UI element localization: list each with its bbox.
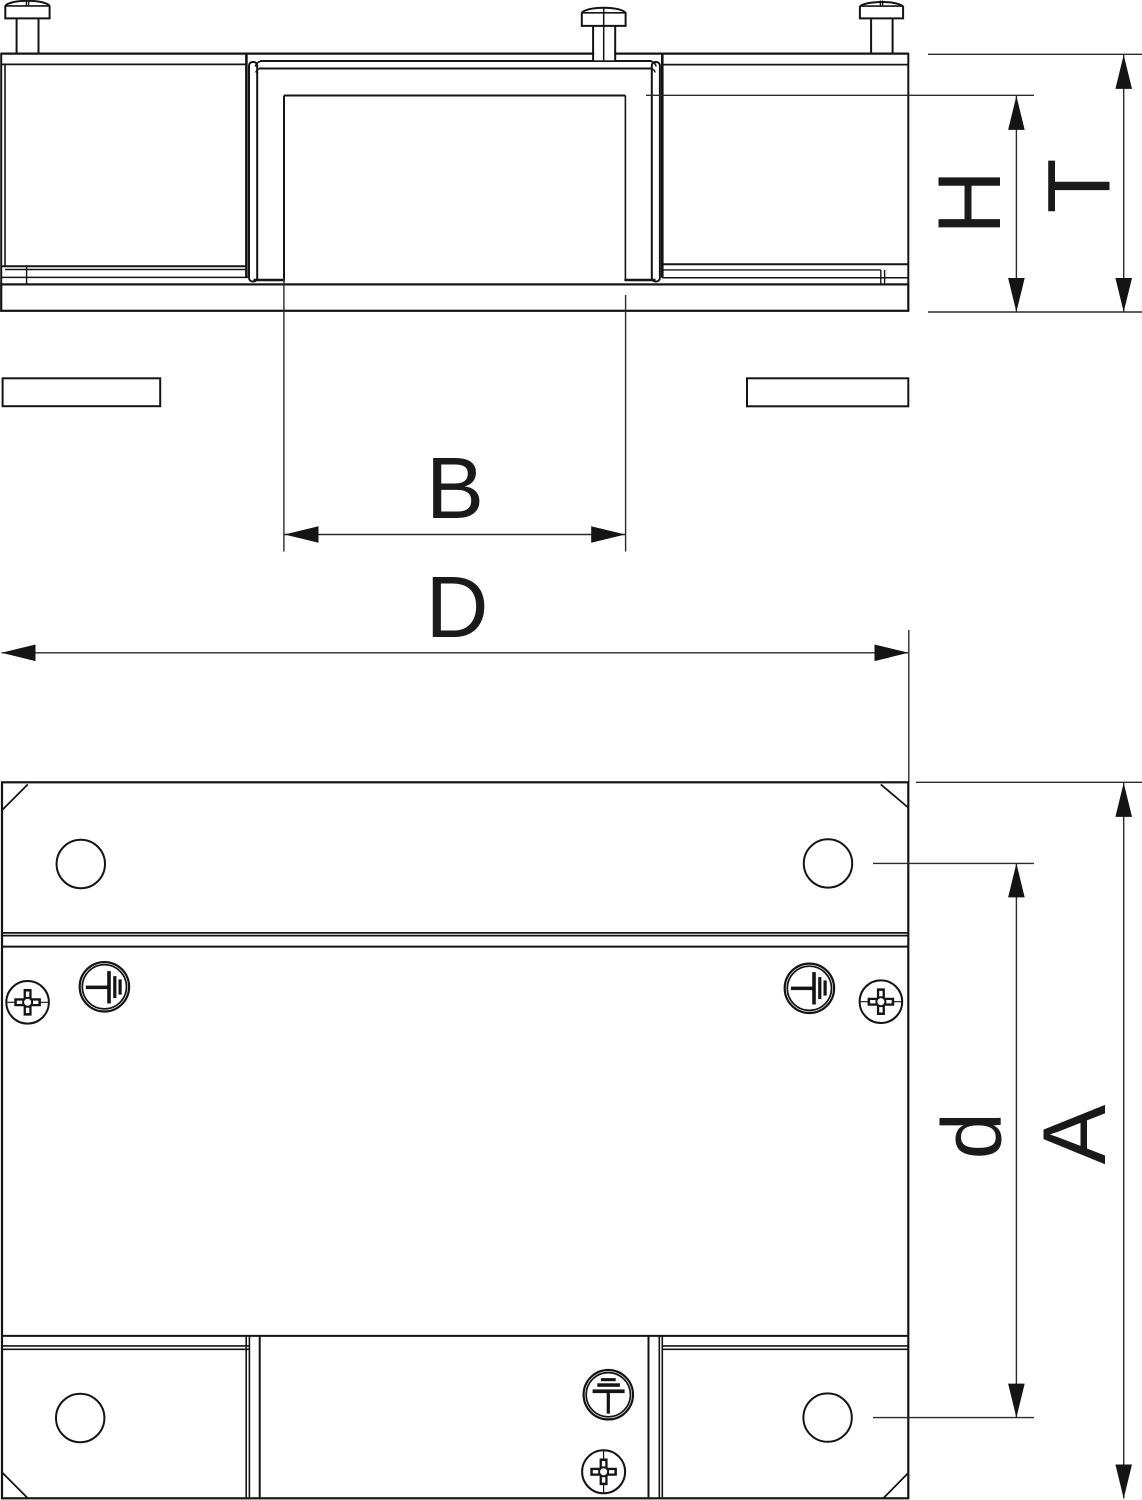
svg-text:D: D [426, 559, 489, 656]
svg-text:B: B [426, 440, 484, 537]
svg-text:T: T [1028, 159, 1128, 214]
svg-text:A: A [1024, 1104, 1124, 1164]
svg-text:d: d [924, 1112, 1018, 1159]
svg-text:H: H [919, 170, 1019, 235]
